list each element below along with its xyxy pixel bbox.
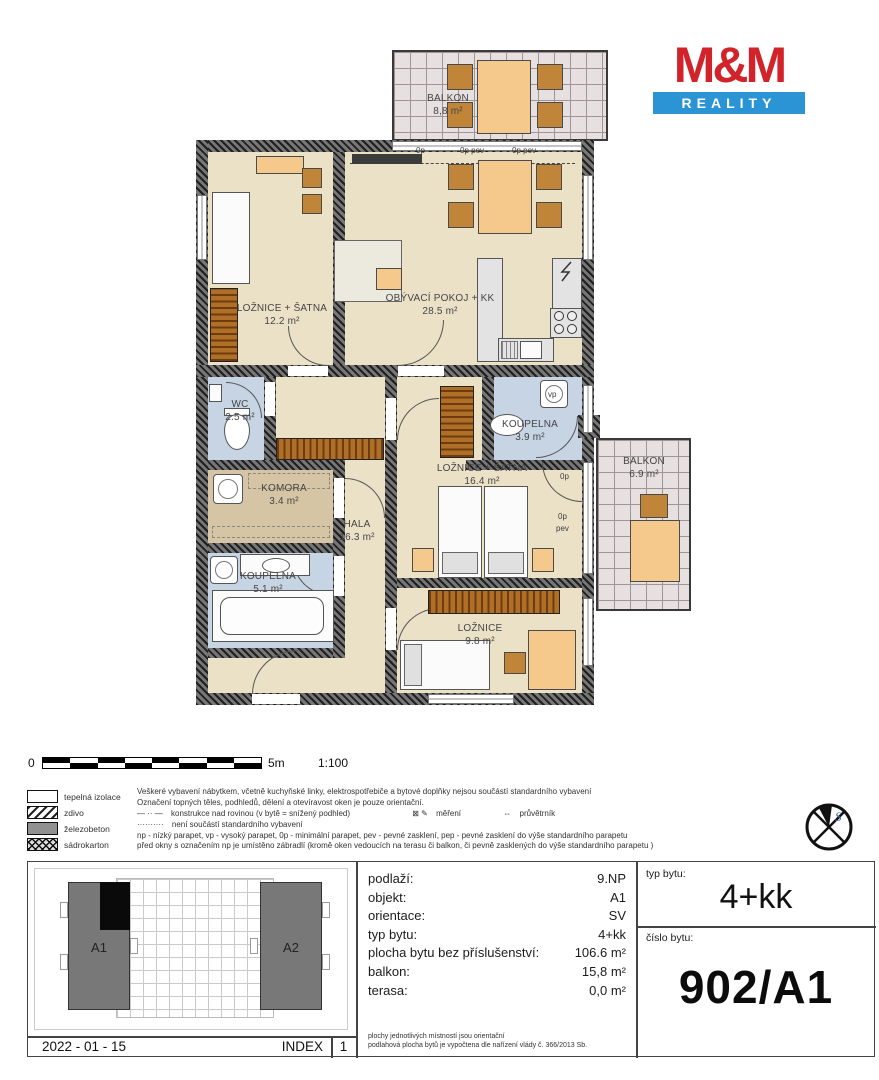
door-gap — [334, 478, 344, 518]
legend-line3-text: konstrukce nad rovinou (v bytě = snížený… — [171, 809, 350, 818]
legend-line3: — ·· — konstrukce nad rovinou (v bytě = … — [137, 809, 555, 819]
siteplan-balcony — [60, 902, 68, 918]
furniture-closet — [276, 438, 384, 460]
room-area: 3.9 m² — [482, 431, 578, 444]
stove-burner — [554, 324, 564, 334]
window — [583, 598, 593, 666]
detail-label: plocha bytu bez příslušenství: — [368, 944, 539, 963]
room-area: 16.4 m² — [402, 475, 562, 488]
siteplan-highlighted-unit — [100, 882, 130, 930]
info-table: A1 A2 2022 - 01 - 15 INDEX 1 podlaží: 9.… — [27, 861, 875, 1057]
room-name: WC — [212, 398, 268, 411]
stove-burner — [567, 324, 577, 334]
balcony-table — [630, 520, 680, 582]
floorplan-page: M&M REALITY — [0, 0, 879, 1080]
room-label-hala: HALA 16.3 m² — [322, 518, 392, 544]
note-line1: plochy jednotlivých místností jsou orien… — [368, 1032, 628, 1041]
detail-label: podlaží: — [368, 870, 414, 889]
window-label: vp — [548, 390, 556, 400]
legend-label: železobeton — [64, 824, 110, 834]
wall — [208, 460, 345, 470]
window-label: 0p — [558, 512, 567, 522]
siteplan-balcony — [322, 954, 330, 970]
stove-burner — [567, 311, 577, 321]
furniture-chair — [536, 202, 562, 228]
pillow — [442, 552, 478, 574]
window-balcony-door — [583, 462, 593, 574]
detail-row: terasa: 0,0 m² — [368, 982, 626, 1001]
furniture-dining-table — [478, 160, 532, 234]
detail-row: typ bytu: 4+kk — [368, 926, 626, 945]
detail-value: 106.6 m² — [575, 944, 626, 963]
logo-reality-bar: REALITY — [653, 92, 805, 114]
room-label-wc: WC 2.5 m² — [212, 398, 268, 424]
siteplan-a2-label: A2 — [260, 940, 322, 955]
dotted-line-symbol: ·········· — [137, 820, 164, 830]
room-label-koupelna-mala: KOUPELNA 3.9 m² — [482, 418, 578, 444]
window — [197, 195, 207, 260]
area-note: plochy jednotlivých místností jsou orien… — [368, 1032, 628, 1050]
cislo-bytu-value: 902/A1 — [636, 960, 876, 1014]
measure-icon: ⊠ ✎ — [412, 809, 428, 819]
furniture-chair — [448, 164, 474, 190]
dashdot-line-symbol: — ·· — — [137, 809, 163, 819]
table-divider — [356, 862, 358, 1058]
legend-line4-text: není součástí standardního vybavení — [172, 820, 303, 829]
room-area: 16.3 m² — [322, 531, 392, 544]
detail-value: 4+kk — [598, 926, 626, 945]
door-gap — [386, 608, 396, 650]
legend-line1: Veškeré vybavení nábytkem, včetně kuchyň… — [137, 787, 591, 797]
room-label-balkon-top: BALKON 8,8 m² — [396, 92, 500, 118]
legend-swatch-sadrokarton — [27, 838, 58, 851]
room-name: LOŽNICE + ŠATNA — [402, 462, 562, 475]
door-gap — [386, 398, 396, 440]
detail-value: 15,8 m² — [582, 963, 626, 982]
room-label-komora: KOMORA 3.4 m² — [238, 482, 330, 508]
room-label-koupelna-velka: KOUPELNA 5.1 m² — [222, 570, 314, 596]
room-area: 9.8 m² — [415, 635, 545, 648]
legend-mereni-text: měření — [436, 809, 461, 818]
furniture-wardrobe — [440, 386, 474, 458]
room-label-balkon-right: BALKON 6.9 m² — [600, 455, 688, 481]
plan-date: 2022 - 01 - 15 — [42, 1039, 126, 1054]
scale-bar-row — [43, 763, 261, 768]
window-label: pev — [556, 524, 569, 534]
scale-bar — [42, 757, 262, 769]
furniture-desk — [256, 156, 304, 174]
room-label-loznice: LOŽNICE 9.8 m² — [415, 622, 545, 648]
legend-line2: Označení topných těles, podhledů, dělení… — [137, 798, 424, 808]
legend-line5: np - nízký parapet, vp - vysoký parapet,… — [137, 831, 628, 841]
nightstand — [412, 548, 434, 572]
window-label: 0p — [416, 146, 425, 156]
entry-door-gap — [252, 694, 300, 704]
kitchen-sink — [520, 341, 542, 359]
table-divider — [636, 926, 876, 928]
balcony-chair — [537, 64, 563, 90]
detail-row: plocha bytu bez příslušenství: 106.6 m² — [368, 944, 626, 963]
svg-text:S: S — [835, 809, 842, 824]
detail-row: balkon: 15,8 m² — [368, 963, 626, 982]
note-line2: podlahová plocha bytů je vypočtena dle n… — [368, 1041, 628, 1050]
detail-row: podlaží: 9.NP — [368, 870, 626, 889]
detail-row: objekt: A1 — [368, 889, 626, 908]
siteplan-balcony — [60, 954, 68, 970]
room-name: BALKON — [396, 92, 500, 105]
wall — [208, 648, 333, 658]
pillow — [404, 644, 422, 686]
room-label-obyvaci-pokoj: OBÝVACÍ POKOJ + KK 28.5 m² — [355, 292, 525, 318]
balcony-chair — [640, 494, 668, 518]
legend-label: sádrokarton — [64, 840, 109, 850]
furniture-chair — [302, 194, 322, 214]
pillow — [488, 552, 524, 574]
detail-value: 0,0 m² — [589, 982, 626, 1001]
shelf-dashed — [212, 526, 330, 538]
siteplan-cell: A1 A2 — [28, 862, 356, 1036]
fridge-icon — [552, 258, 582, 284]
detail-value: SV — [609, 907, 626, 926]
cislo-bytu-label: číslo bytu: — [646, 932, 693, 944]
wall — [208, 543, 333, 553]
wall — [397, 578, 582, 588]
window — [583, 175, 593, 260]
furniture-tv-bench — [352, 154, 422, 164]
room-area: 2.5 m² — [212, 411, 268, 424]
sink-drainer — [501, 341, 518, 359]
room-area: 8,8 m² — [396, 105, 500, 118]
index-value: 1 — [331, 1039, 356, 1054]
detail-label: typ bytu: — [368, 926, 417, 945]
window — [428, 694, 514, 704]
legend-pruvetrnik-text: průvětrník — [520, 809, 556, 818]
scale-ratio: 1:100 — [318, 756, 348, 770]
room-name: KOMORA — [238, 482, 330, 495]
furniture-wardrobe — [428, 590, 560, 614]
room-area: 28.5 m² — [355, 305, 525, 318]
detail-row: orientace: SV — [368, 907, 626, 926]
furniture-chair — [536, 164, 562, 190]
legend-line6: před okny s označením np je umístěno záb… — [137, 841, 653, 851]
furniture-bed — [212, 192, 250, 284]
wall — [196, 365, 594, 377]
legend-swatch-tepelna-izolace — [27, 790, 58, 803]
siteplan-balcony — [250, 938, 258, 954]
furniture-chair — [504, 652, 526, 674]
room-label-loznice-satna-2: LOŽNICE + ŠATNA 16.4 m² — [402, 462, 562, 488]
detail-label: objekt: — [368, 889, 406, 908]
room-name: BALKON — [600, 455, 688, 468]
detail-label: balkon: — [368, 963, 410, 982]
detail-value: 9.NP — [597, 870, 626, 889]
scale-zero: 0 — [28, 756, 35, 770]
room-name: LOŽNICE — [415, 622, 545, 635]
detail-label: orientace: — [368, 907, 425, 926]
furniture-chair — [302, 168, 322, 188]
room-area: 3.4 m² — [238, 495, 330, 508]
door-gap — [398, 366, 444, 376]
furniture-coffee-table — [376, 268, 402, 290]
legend-swatch-zdivo — [27, 806, 58, 819]
balcony-chair — [537, 102, 563, 128]
room-area: 5.1 m² — [222, 583, 314, 596]
room-area: 12.2 m² — [232, 315, 332, 328]
legend-label: tepelná izolace — [64, 792, 121, 802]
window — [583, 385, 593, 433]
legend-swatch-zelezobeton — [27, 822, 58, 835]
legend-label: zdivo — [64, 808, 84, 818]
window-label: 0p pev — [512, 146, 536, 156]
stove-burner — [554, 311, 564, 321]
north-compass-icon: S — [802, 800, 856, 854]
furniture-chair — [448, 202, 474, 228]
legend-line4: ·········· není součástí standardního vy… — [137, 820, 303, 830]
room-area: 6.9 m² — [600, 468, 688, 481]
room-name: KOUPELNA — [482, 418, 578, 431]
detail-label: terasa: — [368, 982, 408, 1001]
mm-reality-logo: M&M REALITY — [653, 38, 805, 114]
room-name: KOUPELNA — [222, 570, 314, 583]
siteplan-balcony — [130, 938, 138, 954]
window-label: 0p pev — [460, 146, 484, 156]
room-name: OBÝVACÍ POKOJ + KK — [355, 292, 525, 305]
vent-icon: ⇔ — [503, 809, 511, 819]
window-label: 0p — [560, 472, 569, 482]
nightstand — [532, 548, 554, 572]
balcony-chair — [447, 64, 473, 90]
typ-bytu-value: 4+kk — [636, 878, 876, 917]
door-gap — [288, 366, 328, 376]
siteplan-balcony — [322, 902, 330, 918]
room-name: LOŽNICE + ŠATNA — [232, 302, 332, 315]
siteplan-a1-label: A1 — [68, 940, 130, 955]
bathtub-inner — [220, 597, 324, 635]
room-label-loznice-satna-1: LOŽNICE + ŠATNA 12.2 m² — [232, 302, 332, 328]
index-label: INDEX — [208, 1039, 323, 1054]
logo-mm-text: M&M — [653, 38, 805, 92]
door-gap — [334, 556, 344, 596]
room-name: HALA — [322, 518, 392, 531]
scale-end: 5m — [268, 756, 285, 770]
details-cell: podlaží: 9.NP objekt: A1 orientace: SV t… — [368, 870, 626, 1000]
table-divider — [28, 1036, 356, 1038]
detail-value: A1 — [610, 889, 626, 908]
